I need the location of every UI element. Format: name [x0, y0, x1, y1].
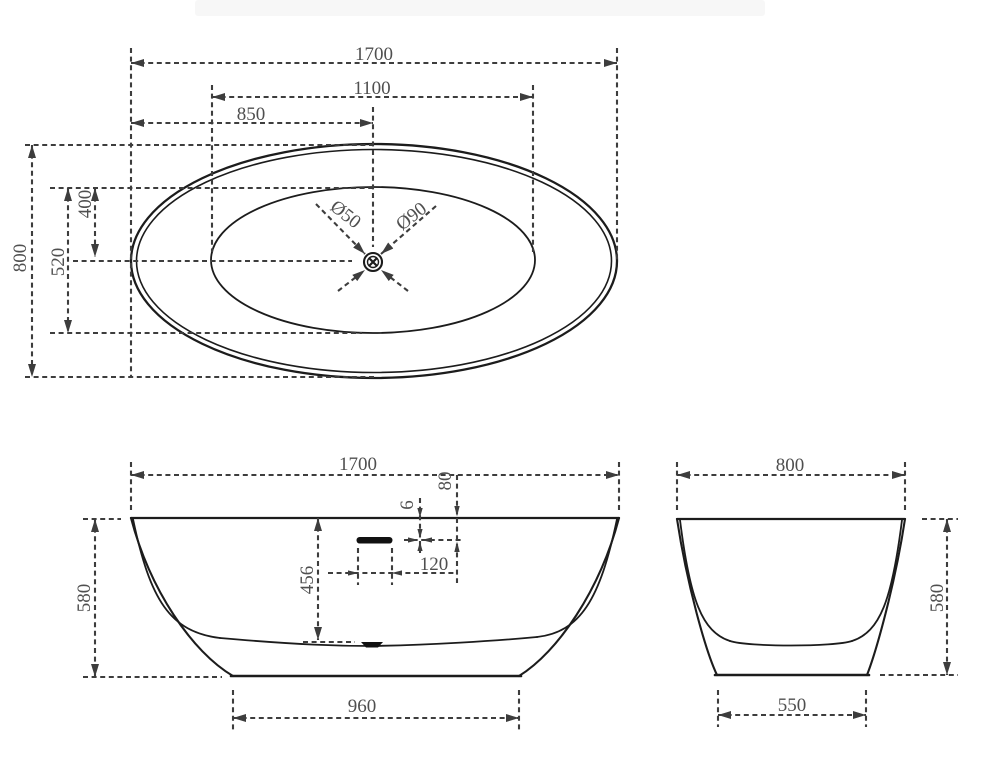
front-outer-wall-left: [131, 518, 233, 676]
arrowhead: [417, 529, 422, 539]
dim-label-top-length: 1700: [355, 44, 393, 65]
front-view-outline: [131, 518, 619, 676]
dim-label-drain-from-end: 850: [237, 104, 266, 125]
front-view: 1700 580 456 6 80 120 960: [74, 454, 619, 730]
top-view: 1700 1100 850 800 520 400 Ø50 Ø90: [10, 44, 617, 378]
arrowhead: [348, 570, 359, 575]
dim-label-overflow-width: 120: [420, 554, 449, 575]
dim-label-drain-flange-dia: Ø90: [392, 198, 431, 235]
arrowhead: [392, 570, 403, 575]
dim-label-side-height: 580: [927, 584, 948, 613]
drawing-canvas: 1700 1100 850 800 520 400 Ø50 Ø90: [0, 0, 1000, 767]
arrowhead: [408, 537, 419, 542]
arrowhead: [422, 537, 433, 542]
leader-stub: [381, 270, 408, 291]
arrowhead: [417, 542, 422, 552]
arrowhead: [454, 506, 459, 517]
arrowhead: [454, 542, 459, 553]
arrowhead: [417, 508, 422, 518]
front-inner-wall-left: [133, 519, 220, 638]
tub-basin-ellipse: [211, 187, 535, 333]
front-inner-wall-right: [537, 519, 617, 637]
side-interior-floor: [730, 641, 852, 646]
dim-label-basin-top-to-drain: 400: [75, 190, 96, 219]
overflow-slot: [357, 537, 393, 544]
dim-label-base-length: 960: [348, 696, 377, 717]
dim-label-front-height: 580: [74, 584, 95, 613]
dim-label-top-width: 800: [10, 244, 31, 273]
dim-label-overflow-height: 6: [397, 500, 418, 510]
dim-label-interior-depth: 456: [297, 566, 318, 595]
dim-label-overflow-drop: 80: [435, 472, 456, 491]
side-view: 800 580 550: [677, 455, 958, 727]
dim-label-side-width: 800: [776, 455, 805, 476]
side-inner-wall-left: [680, 520, 730, 641]
side-view-dimensions: 800 580 550: [677, 455, 958, 727]
side-view-outline: [677, 519, 905, 675]
front-outer-wall-right: [519, 518, 619, 676]
dim-label-drain-hole-dia: Ø50: [326, 196, 365, 233]
dim-label-side-base-width: 550: [778, 695, 807, 716]
watermark-smudge: [195, 0, 765, 16]
dim-label-basin-length: 1100: [353, 78, 390, 99]
dim-label-basin-width: 520: [48, 248, 69, 277]
bathtub-technical-drawing: 1700 1100 850 800 520 400 Ø50 Ø90: [0, 0, 1000, 767]
drain-cross-icon: [370, 259, 377, 266]
dim-label-front-length: 1700: [339, 454, 377, 475]
leader-stub: [338, 270, 365, 291]
